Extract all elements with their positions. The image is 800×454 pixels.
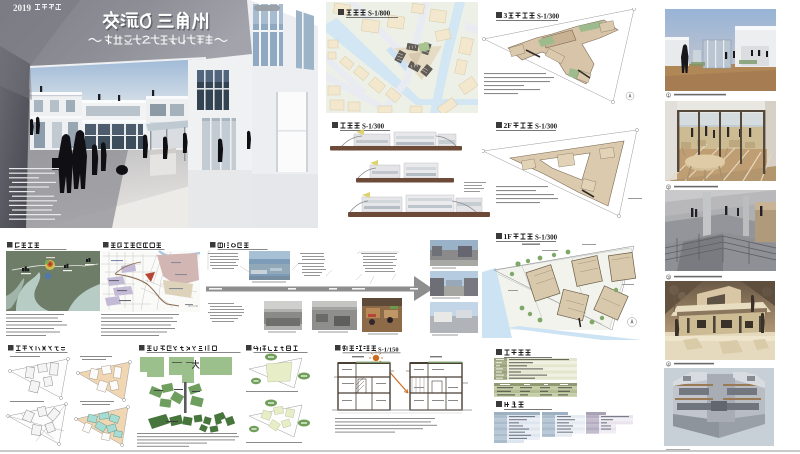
svg-text:S-1/150: S-1/150 (378, 347, 399, 354)
svg-text:S-1/300: S-1/300 (537, 13, 560, 21)
svg-text:S-1/300: S-1/300 (535, 234, 558, 242)
svg-text:S-1/300: S-1/300 (362, 123, 385, 131)
svg-text:S-1/300: S-1/300 (535, 123, 558, 131)
svg-text:1F: 1F (504, 232, 513, 241)
svg-text:2019: 2019 (13, 3, 32, 13)
svg-text:S-1/800: S-1/800 (368, 10, 391, 18)
svg-text:2F: 2F (504, 121, 513, 130)
svg-text:3: 3 (504, 11, 508, 20)
